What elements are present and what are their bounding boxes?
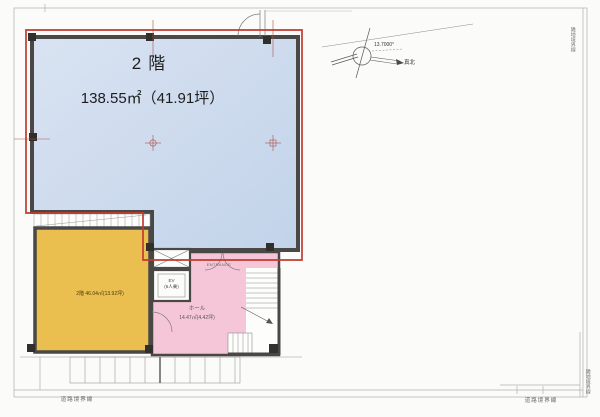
- second-room-shape: [35, 228, 150, 352]
- boundary-label-bottom-right: 道路境界線: [509, 398, 573, 404]
- boundary-label-right-top: 隣地境界線: [569, 16, 575, 62]
- entrance-label: ENTRANCE: [197, 263, 241, 268]
- main-room-area-label: 138.55㎡（41.91坪）: [35, 90, 270, 107]
- elevator-capacity-label: (6人乗): [155, 284, 188, 289]
- floor-plan: 2階 138.55㎡（41.91坪） 2階 46.04㎡(13.92坪) ホール…: [0, 0, 600, 417]
- second-room-label: 2階 46.04㎡(13.92坪): [52, 292, 148, 298]
- parking-stalls: [20, 357, 302, 383]
- compass-angle-label: 13.7000°: [374, 43, 394, 49]
- hall-name-label: ホール: [172, 306, 222, 312]
- upper-stairs: [34, 214, 150, 227]
- boundary-label-right-bottom: 隣地境界線: [584, 360, 590, 402]
- hall-area-label: 14.47㎡(4.42坪): [165, 316, 229, 322]
- north-compass: [322, 24, 473, 78]
- true-north-label: 真北: [404, 60, 415, 66]
- elevator-label: EV: [157, 278, 186, 283]
- elevator-shaft: [153, 249, 190, 301]
- main-room-floor-label: 2階: [62, 54, 242, 74]
- boundary-label-bottom-left: 道路境界線: [45, 397, 109, 403]
